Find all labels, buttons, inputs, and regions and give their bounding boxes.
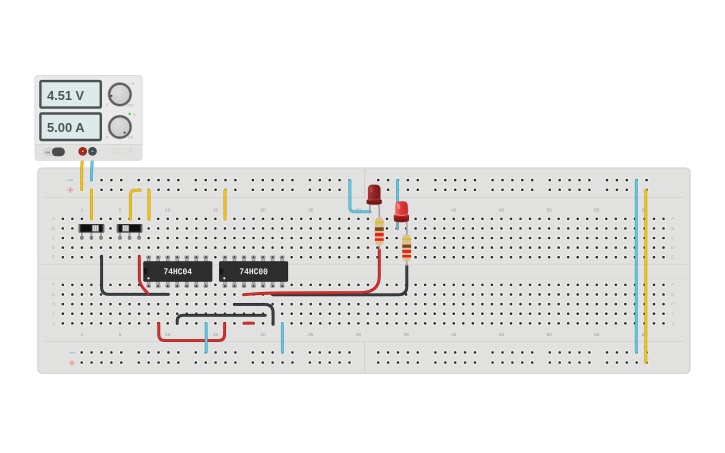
svg-text:10: 10 <box>165 332 171 338</box>
svg-text:5.00 A: 5.00 A <box>47 121 85 135</box>
svg-text:20: 20 <box>260 332 266 338</box>
svg-text:55: 55 <box>594 332 600 338</box>
svg-text:I: I <box>53 311 54 317</box>
svg-text:C: C <box>52 235 56 241</box>
svg-text:H: H <box>671 301 675 307</box>
svg-text:C: C <box>671 235 675 241</box>
svg-text:ON: ON <box>45 151 50 155</box>
svg-text:50: 50 <box>546 207 552 213</box>
svg-text:SUPPLY: SUPPLY <box>112 151 126 155</box>
svg-text:0: 0 <box>106 135 108 139</box>
svg-text:45: 45 <box>499 207 505 213</box>
svg-text:35: 35 <box>403 332 409 338</box>
svg-text:E: E <box>671 255 674 261</box>
svg-text:40: 40 <box>451 207 457 213</box>
svg-text:G: G <box>671 292 675 298</box>
svg-text:H: H <box>52 301 56 307</box>
svg-text:F: F <box>52 282 55 288</box>
svg-text:5: 5 <box>119 332 122 338</box>
svg-text:1: 1 <box>81 207 84 213</box>
svg-text:0: 0 <box>106 103 108 107</box>
svg-text:D: D <box>52 245 56 251</box>
svg-text:G: G <box>52 292 56 298</box>
svg-text:74HC04: 74HC04 <box>164 267 193 277</box>
svg-text:1: 1 <box>81 332 84 338</box>
svg-text:25: 25 <box>308 332 314 338</box>
svg-text:F: F <box>671 282 674 288</box>
svg-text:5: 5 <box>119 207 122 213</box>
svg-text:I: I <box>672 311 673 317</box>
svg-text:D: D <box>671 245 675 251</box>
svg-text:20: 20 <box>260 207 266 213</box>
svg-text:15: 15 <box>213 207 219 213</box>
svg-text:14 V: 14 V <box>127 103 134 107</box>
svg-text:B: B <box>52 226 55 232</box>
svg-text:50: 50 <box>546 332 552 338</box>
svg-text:10: 10 <box>165 207 171 213</box>
svg-text:○ M: ○ M <box>129 81 135 85</box>
svg-text:74HC00: 74HC00 <box>239 267 268 277</box>
svg-text:4.51 V: 4.51 V <box>47 89 84 103</box>
svg-text:E: E <box>52 255 55 261</box>
svg-text:45: 45 <box>499 332 505 338</box>
svg-text:55: 55 <box>594 207 600 213</box>
svg-text:40: 40 <box>451 332 457 338</box>
svg-text:15: 15 <box>213 332 219 338</box>
svg-text:25: 25 <box>308 207 314 213</box>
svg-text:30: 30 <box>356 332 362 338</box>
svg-text:B: B <box>671 226 674 232</box>
